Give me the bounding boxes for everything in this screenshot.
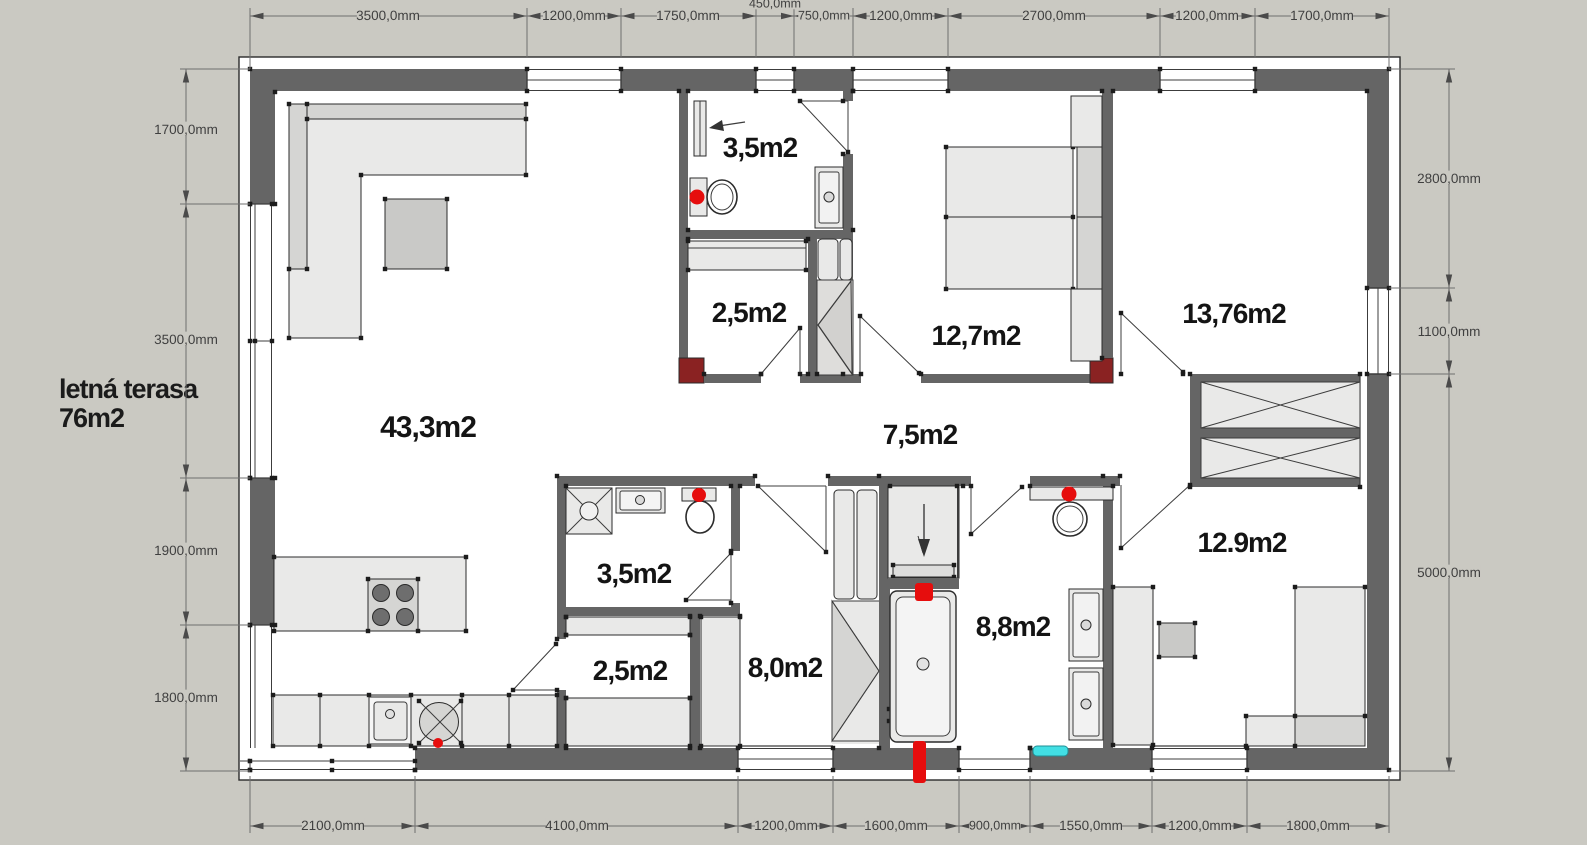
svg-text:1750,0mm: 1750,0mm [656, 8, 720, 23]
svg-text:1100,0mm: 1100,0mm [1418, 324, 1481, 339]
svg-text:1800,0mm: 1800,0mm [1286, 818, 1350, 833]
svg-text:2800,0mm: 2800,0mm [1417, 171, 1481, 186]
svg-text:1200,0mm: 1200,0mm [1175, 8, 1239, 23]
svg-text:1200,0mm: 1200,0mm [869, 8, 933, 23]
svg-text:1700,0mm: 1700,0mm [1290, 8, 1354, 23]
svg-text:8,0m2: 8,0m2 [748, 652, 823, 683]
svg-text:13,76m2: 13,76m2 [1182, 298, 1286, 329]
svg-text:2,5m2: 2,5m2 [593, 655, 668, 686]
svg-text:3,5m2: 3,5m2 [597, 558, 672, 589]
svg-text:1200,0mm: 1200,0mm [542, 8, 606, 23]
svg-text:12,7m2: 12,7m2 [932, 320, 1021, 351]
svg-text:750,0mm: 750,0mm [798, 9, 850, 23]
svg-text:3500,0mm: 3500,0mm [356, 8, 420, 23]
svg-text:900,0mm: 900,0mm [969, 819, 1021, 833]
svg-text:450,0mm: 450,0mm [749, 0, 801, 11]
svg-text:letná terasa: letná terasa [59, 374, 199, 404]
svg-text:2100,0mm: 2100,0mm [301, 818, 365, 833]
svg-text:12.9m2: 12.9m2 [1198, 527, 1287, 558]
svg-text:2,5m2: 2,5m2 [712, 297, 787, 328]
svg-text:1600,0mm: 1600,0mm [864, 818, 928, 833]
svg-text:4100,0mm: 4100,0mm [545, 818, 609, 833]
svg-text:1550,0mm: 1550,0mm [1059, 818, 1123, 833]
svg-text:7,5m2: 7,5m2 [883, 419, 958, 450]
svg-text:3,5m2: 3,5m2 [723, 132, 798, 163]
svg-text:1200,0mm: 1200,0mm [754, 818, 818, 833]
svg-text:1900,0mm: 1900,0mm [154, 543, 218, 558]
svg-text:1800,0mm: 1800,0mm [154, 690, 218, 705]
svg-text:8,8m2: 8,8m2 [976, 611, 1051, 642]
svg-text:3500,0mm: 3500,0mm [154, 332, 218, 347]
svg-text:43,3m2: 43,3m2 [380, 411, 476, 444]
svg-text:5000,0mm: 5000,0mm [1417, 565, 1481, 580]
svg-text:2700,0mm: 2700,0mm [1022, 8, 1086, 23]
svg-text:1200,0mm: 1200,0mm [1168, 818, 1232, 833]
svg-text:76m2: 76m2 [59, 403, 124, 433]
svg-text:1700,0mm: 1700,0mm [154, 122, 218, 137]
